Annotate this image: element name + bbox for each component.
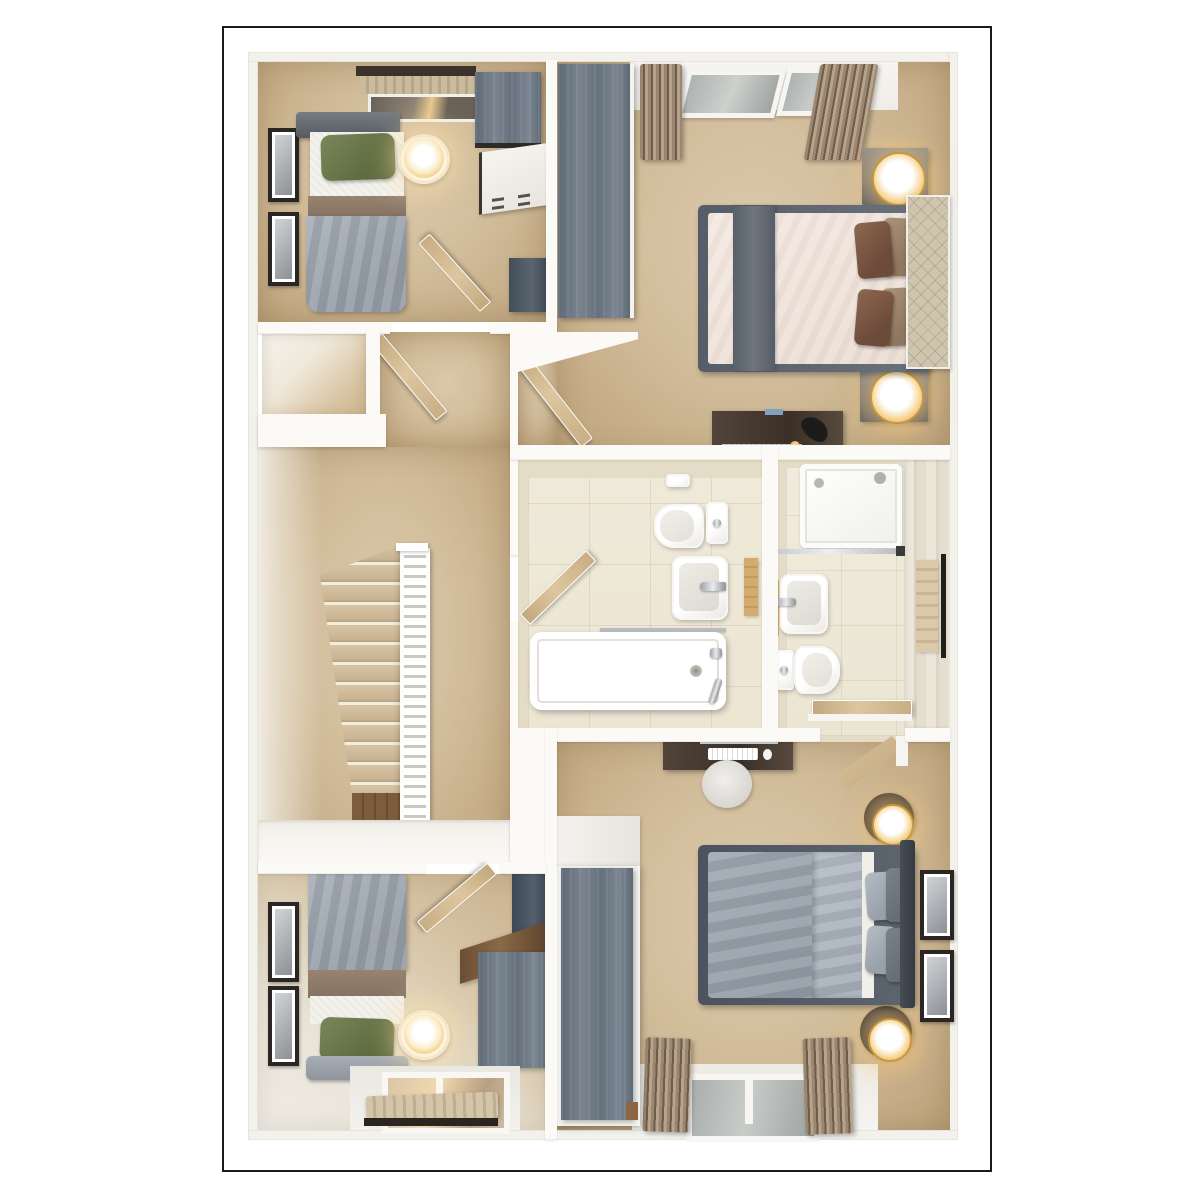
round-rug <box>702 760 752 808</box>
faucet <box>776 598 796 606</box>
wall <box>546 60 557 334</box>
blanket-band <box>308 196 406 218</box>
toilet-cistern <box>706 502 728 544</box>
wall <box>545 728 557 1140</box>
master-headboard <box>906 195 950 369</box>
stair-banister <box>400 548 430 846</box>
nightstand-lamp <box>868 1018 912 1062</box>
pillow <box>854 221 895 280</box>
wall <box>500 862 546 874</box>
door-frame <box>808 714 912 721</box>
picture-frame <box>920 950 954 1022</box>
duvet-fold <box>812 852 864 998</box>
stair-banister-post <box>396 543 428 551</box>
window-blind <box>360 76 476 94</box>
headboard <box>900 840 915 1008</box>
bath-mixer <box>710 648 722 658</box>
blanket-band <box>308 970 406 998</box>
wall <box>762 445 778 740</box>
towel-ledge <box>744 558 758 616</box>
wall <box>510 622 518 740</box>
window <box>686 1074 820 1142</box>
curtains <box>642 1037 691 1133</box>
bed-runner <box>733 206 775 371</box>
picture-frame <box>268 212 299 286</box>
toilet-bowl <box>794 646 840 694</box>
faucet <box>700 582 726 591</box>
green-pillow <box>320 133 396 182</box>
drawer-handle <box>518 194 530 199</box>
shower-tray <box>800 464 902 548</box>
picture-frame <box>268 902 299 982</box>
exterior-wall-left <box>248 52 258 1140</box>
dresser <box>479 143 546 214</box>
shower-room-sink <box>780 574 828 634</box>
wardrobe <box>556 866 640 1126</box>
landing-corridor-floor <box>380 332 510 447</box>
desk-lamp <box>797 412 833 447</box>
shower-screen-end <box>896 546 905 556</box>
toilet-bowl <box>654 504 704 548</box>
wall <box>905 728 950 742</box>
picture-frame <box>268 128 291 194</box>
drawer-handle <box>492 205 504 210</box>
bathroom-sink <box>672 556 728 620</box>
landing-alcove-floor <box>262 332 366 416</box>
towel <box>916 560 938 652</box>
desk-body <box>478 952 548 1068</box>
wall <box>510 445 950 460</box>
curtains <box>802 1037 853 1135</box>
wardrobe-cabinet <box>475 72 541 144</box>
bathtub <box>530 632 726 710</box>
flush-plate <box>666 474 690 487</box>
curtains <box>640 64 682 160</box>
pillow <box>854 289 895 348</box>
wardrobe-shelf <box>626 1102 638 1120</box>
bath-drain <box>690 665 702 677</box>
floor-plan <box>0 0 1200 1200</box>
landing-wall-face <box>258 447 322 820</box>
table-lamp <box>404 138 444 178</box>
duvet <box>306 216 406 312</box>
bathroom-floor <box>518 460 782 758</box>
picture-frame <box>268 986 299 1066</box>
mouse <box>763 749 772 760</box>
wall <box>510 332 518 556</box>
stair-bulkhead <box>258 820 510 864</box>
wardrobe-top-unit <box>556 816 640 866</box>
shower-screen <box>778 549 904 554</box>
wall <box>258 862 425 874</box>
wall <box>366 330 380 418</box>
window <box>676 70 786 118</box>
towel-rail <box>941 554 946 658</box>
bath-handle <box>708 678 723 705</box>
exterior-wall-top <box>248 52 958 62</box>
duvet <box>308 874 406 972</box>
master-wardrobe <box>558 64 634 318</box>
side-cabinet <box>509 258 547 312</box>
window-pelmet-bar <box>364 1118 498 1126</box>
window-pelmet <box>356 66 476 76</box>
duvet <box>708 852 812 998</box>
table-lamp <box>404 1014 444 1054</box>
drawer-handle <box>518 202 530 207</box>
picture-frame <box>920 870 954 940</box>
desk-item <box>765 409 783 415</box>
stairwell-lower-floor <box>352 793 402 823</box>
keyboard <box>708 748 758 760</box>
nightstand-lamp <box>870 370 924 424</box>
wall <box>258 414 386 447</box>
drawer-handle <box>492 197 504 202</box>
